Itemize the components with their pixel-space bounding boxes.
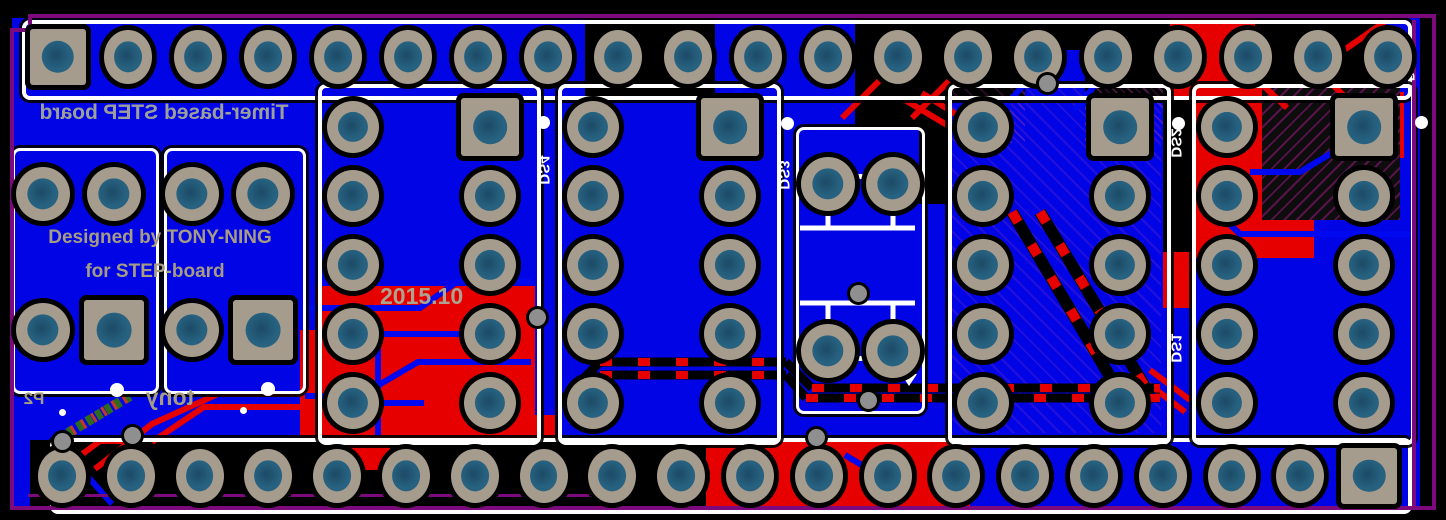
through-hole-pad[interactable] <box>384 30 432 84</box>
drill-hole <box>954 41 982 72</box>
silk-dot <box>261 382 275 396</box>
drill-hole <box>1212 112 1242 142</box>
silk-dot <box>1415 116 1428 129</box>
drill-hole <box>247 178 278 209</box>
through-hole-pad[interactable] <box>327 377 379 429</box>
through-hole-pad[interactable] <box>233 300 293 360</box>
drill-hole <box>324 41 352 72</box>
drill-hole <box>464 41 492 72</box>
through-hole-pad[interactable] <box>382 449 430 503</box>
through-hole-pad[interactable] <box>1341 448 1397 504</box>
through-hole-pad[interactable] <box>1094 377 1146 429</box>
ds4-designator: DS4 <box>534 140 554 200</box>
drill-hole <box>968 250 998 280</box>
through-hole-pad[interactable] <box>1094 239 1146 291</box>
through-hole-pad[interactable] <box>866 157 920 211</box>
through-hole-pad[interactable] <box>957 239 1009 291</box>
silk-dot <box>59 409 66 416</box>
drill-hole <box>744 41 772 72</box>
through-hole-pad[interactable] <box>327 101 379 153</box>
through-hole-pad[interactable] <box>1338 170 1390 222</box>
drill-hole <box>338 388 368 418</box>
through-hole-pad[interactable] <box>38 449 86 503</box>
through-hole-pad[interactable] <box>87 167 141 221</box>
through-hole-pad[interactable] <box>84 300 144 360</box>
drill-hole <box>1212 388 1242 418</box>
drill-hole <box>604 41 632 72</box>
p2-designator: P2 <box>16 389 52 409</box>
drill-hole <box>114 41 142 72</box>
through-hole-pad[interactable] <box>567 170 619 222</box>
drill-hole <box>27 178 58 209</box>
through-hole-pad[interactable] <box>1139 449 1187 503</box>
drill-hole <box>877 335 908 366</box>
drill-hole <box>1212 319 1242 349</box>
through-hole-pad[interactable] <box>567 101 619 153</box>
drill-hole <box>530 460 558 491</box>
drill-hole <box>578 319 608 349</box>
through-hole-pad[interactable] <box>327 170 379 222</box>
drill-hole <box>667 460 695 491</box>
drill-hole <box>98 178 129 209</box>
drill-hole <box>475 181 505 211</box>
drill-hole <box>338 112 368 142</box>
through-hole-pad[interactable] <box>236 167 290 221</box>
via <box>860 392 877 409</box>
through-hole-pad[interactable] <box>866 324 920 378</box>
through-hole-pad[interactable] <box>1070 449 1118 503</box>
via <box>124 427 141 444</box>
through-hole-pad[interactable] <box>957 377 1009 429</box>
through-hole-pad[interactable] <box>1154 30 1202 84</box>
through-hole-pad[interactable] <box>16 303 70 357</box>
signature-text: tony <box>130 384 210 411</box>
pcb-layout-canvas: Timer-based STEP board Designed by TONY-… <box>0 0 1446 520</box>
board-title-text: Timer-based STEP board <box>16 101 312 125</box>
board-edge-top <box>28 14 1436 18</box>
via <box>529 309 546 326</box>
drill-hole <box>1304 41 1332 72</box>
via <box>808 429 825 446</box>
drill-hole <box>713 110 747 144</box>
drill-hole <box>1212 250 1242 280</box>
through-hole-pad[interactable] <box>165 167 219 221</box>
through-hole-pad[interactable] <box>657 449 705 503</box>
through-hole-pad[interactable] <box>1201 377 1253 429</box>
drill-hole <box>805 460 833 491</box>
through-hole-pad[interactable] <box>1294 30 1342 84</box>
through-hole-pad[interactable] <box>520 449 568 503</box>
through-hole-pad[interactable] <box>1094 308 1146 360</box>
through-hole-pad[interactable] <box>726 449 774 503</box>
drill-hole <box>338 250 368 280</box>
through-hole-pad[interactable] <box>957 308 1009 360</box>
via <box>54 433 71 450</box>
through-hole-pad[interactable] <box>107 449 155 503</box>
through-hole-pad[interactable] <box>795 449 843 503</box>
through-hole-pad[interactable] <box>174 30 222 84</box>
through-hole-pad[interactable] <box>464 239 516 291</box>
through-hole-pad[interactable] <box>1091 98 1149 156</box>
drill-hole <box>1149 460 1177 491</box>
drill-hole <box>254 41 282 72</box>
drill-hole <box>1105 250 1135 280</box>
drill-hole <box>473 110 507 144</box>
through-hole-pad[interactable] <box>704 239 756 291</box>
through-hole-pad[interactable] <box>464 308 516 360</box>
drill-hole <box>1347 110 1381 144</box>
through-hole-pad[interactable] <box>1094 170 1146 222</box>
through-hole-pad[interactable] <box>16 167 70 221</box>
drill-hole <box>97 313 132 348</box>
ds3-designator: DS3 <box>774 145 794 205</box>
drill-hole <box>812 335 843 366</box>
through-hole-pad[interactable] <box>314 30 362 84</box>
drill-hole <box>475 388 505 418</box>
drill-hole <box>874 460 902 491</box>
drill-hole <box>942 460 970 491</box>
through-hole-pad[interactable] <box>1338 308 1390 360</box>
drill-hole <box>534 41 562 72</box>
drill-hole <box>968 112 998 142</box>
drill-hole <box>461 460 489 491</box>
drill-hole <box>578 112 608 142</box>
through-hole-pad[interactable] <box>701 98 759 156</box>
drill-hole <box>812 168 843 199</box>
silk-dot <box>110 383 124 397</box>
drill-hole <box>1212 181 1242 211</box>
drill-hole <box>1105 388 1135 418</box>
through-hole-pad[interactable] <box>594 30 642 84</box>
through-hole-pad[interactable] <box>104 30 152 84</box>
drill-hole <box>1218 460 1246 491</box>
drill-hole <box>186 460 214 491</box>
through-hole-pad[interactable] <box>454 30 502 84</box>
silk-dot <box>1172 117 1185 130</box>
ds1-designator: DS1 <box>1166 318 1186 378</box>
through-hole-pad[interactable] <box>1364 30 1412 84</box>
drill-hole <box>1349 388 1379 418</box>
drill-hole <box>884 41 912 72</box>
drill-hole <box>392 460 420 491</box>
drill-hole <box>338 181 368 211</box>
drill-hole <box>1011 460 1039 491</box>
drill-hole <box>1286 460 1314 491</box>
through-hole-pad[interactable] <box>244 30 292 84</box>
drill-hole <box>48 460 76 491</box>
drill-hole <box>715 181 745 211</box>
through-hole-pad[interactable] <box>734 30 782 84</box>
through-hole-pad[interactable] <box>1014 30 1062 84</box>
credit-line1-text: Designed by TONY-NING <box>12 227 308 249</box>
through-hole-pad[interactable] <box>327 308 379 360</box>
drill-hole <box>1024 41 1052 72</box>
through-hole-pad[interactable] <box>1338 377 1390 429</box>
through-hole-pad[interactable] <box>957 170 1009 222</box>
drill-hole <box>27 314 58 345</box>
drill-hole <box>578 181 608 211</box>
drill-hole <box>715 388 745 418</box>
drill-hole <box>1105 181 1135 211</box>
drill-hole <box>176 178 207 209</box>
drill-hole <box>323 460 351 491</box>
through-hole-pad[interactable] <box>30 29 86 85</box>
drill-hole <box>1105 319 1135 349</box>
through-hole-pad[interactable] <box>801 324 855 378</box>
via <box>850 285 867 302</box>
through-hole-pad[interactable] <box>1201 239 1253 291</box>
drill-hole <box>338 319 368 349</box>
through-hole-pad[interactable] <box>874 30 922 84</box>
drill-hole <box>246 313 281 348</box>
through-hole-pad[interactable] <box>1201 170 1253 222</box>
drill-hole <box>1103 110 1137 144</box>
drill-hole <box>674 41 702 72</box>
credit-line2-text: for STEP-board <box>12 261 298 283</box>
date-text: 2015.10 <box>380 283 463 310</box>
silk-dot <box>781 117 794 130</box>
through-hole-pad[interactable] <box>461 98 519 156</box>
through-hole-pad[interactable] <box>165 303 219 357</box>
drill-hole <box>578 250 608 280</box>
silk-dot <box>537 116 550 129</box>
drill-hole <box>968 319 998 349</box>
drill-hole <box>1234 41 1262 72</box>
drill-hole <box>42 41 74 73</box>
drill-hole <box>1080 460 1108 491</box>
through-hole-pad[interactable] <box>704 377 756 429</box>
through-hole-pad[interactable] <box>313 449 361 503</box>
drill-hole <box>968 388 998 418</box>
via <box>1039 75 1056 92</box>
through-hole-pad[interactable] <box>451 449 499 503</box>
drill-hole <box>715 250 745 280</box>
through-hole-pad[interactable] <box>1084 30 1132 84</box>
through-hole-pad[interactable] <box>944 30 992 84</box>
drill-hole <box>1164 41 1192 72</box>
through-hole-pad[interactable] <box>704 170 756 222</box>
through-hole-pad[interactable] <box>1201 308 1253 360</box>
drill-hole <box>877 168 908 199</box>
through-hole-pad[interactable] <box>524 30 572 84</box>
drill-hole <box>578 388 608 418</box>
through-hole-pad[interactable] <box>801 157 855 211</box>
drill-hole <box>968 181 998 211</box>
drill-hole <box>254 460 282 491</box>
through-hole-pad[interactable] <box>1001 449 1049 503</box>
drill-hole <box>1094 41 1122 72</box>
through-hole-pad[interactable] <box>327 239 379 291</box>
board-edge-bottom <box>10 506 1436 510</box>
through-hole-pad[interactable] <box>567 377 619 429</box>
through-hole-pad[interactable] <box>957 101 1009 153</box>
through-hole-pad[interactable] <box>704 308 756 360</box>
drill-hole <box>1353 460 1385 492</box>
through-hole-pad[interactable] <box>464 170 516 222</box>
drill-hole <box>814 41 842 72</box>
drill-hole <box>475 319 505 349</box>
through-hole-pad[interactable] <box>864 449 912 503</box>
through-hole-pad[interactable] <box>664 30 712 84</box>
silk-dot <box>240 407 247 414</box>
drill-hole <box>176 314 207 345</box>
drill-hole <box>117 460 145 491</box>
through-hole-pad[interactable] <box>1208 449 1256 503</box>
through-hole-pad[interactable] <box>1224 30 1272 84</box>
drill-hole <box>598 460 626 491</box>
through-hole-pad[interactable] <box>1335 98 1393 156</box>
drill-hole <box>1374 41 1402 72</box>
drill-hole <box>394 41 422 72</box>
drill-hole <box>1349 319 1379 349</box>
board-edge-right <box>1432 14 1436 510</box>
drill-hole <box>715 319 745 349</box>
through-hole-pad[interactable] <box>1338 239 1390 291</box>
through-hole-pad[interactable] <box>1201 101 1253 153</box>
drill-hole <box>736 460 764 491</box>
through-hole-pad[interactable] <box>567 239 619 291</box>
through-hole-pad[interactable] <box>567 308 619 360</box>
drill-hole <box>1349 250 1379 280</box>
drill-hole <box>184 41 212 72</box>
drill-hole <box>1349 181 1379 211</box>
through-hole-pad[interactable] <box>804 30 852 84</box>
through-hole-pad[interactable] <box>464 377 516 429</box>
drill-hole <box>475 250 505 280</box>
through-hole-pad[interactable] <box>176 449 224 503</box>
